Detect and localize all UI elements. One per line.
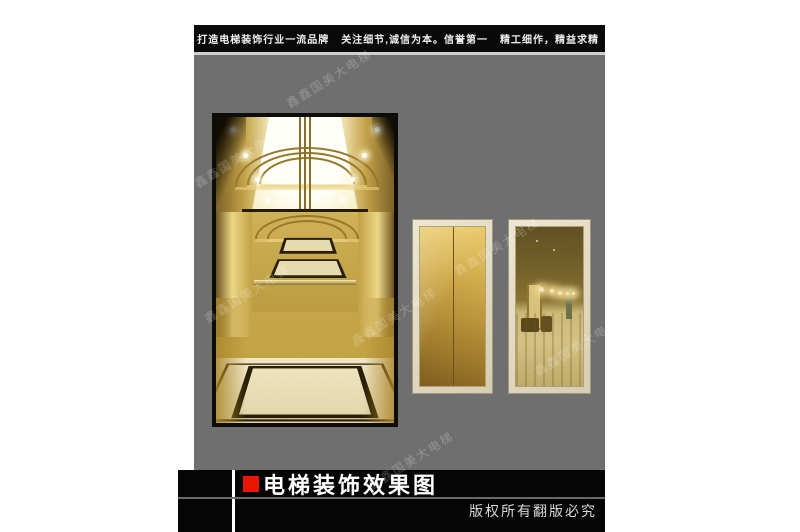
door-leaf-gold	[419, 226, 486, 387]
downlight-icon	[362, 153, 367, 158]
slogan-1: 打造电梯装饰行业一流品牌	[197, 31, 329, 46]
floor-gold-reflection	[216, 298, 246, 423]
ceiling-beam	[304, 117, 306, 213]
footer-bar: 电梯装饰效果图 版权所有翻版必究	[178, 470, 605, 532]
downlight-icon	[340, 197, 345, 202]
mirror-floor-reflection	[269, 259, 346, 278]
door-edge-shadow	[216, 117, 246, 207]
slogan-2: 关注细节,诚信为本。信誉第一	[341, 31, 488, 46]
slogan-3: 精工细作，精益求精	[500, 31, 599, 46]
floor-inlay-border	[231, 366, 378, 418]
gold-tint-overlay	[516, 227, 583, 386]
page-title: 电梯装饰效果图	[263, 468, 438, 500]
downlight-icon	[255, 177, 260, 182]
footer-gray-divider	[178, 497, 605, 499]
copyright-text: 版权所有翻版必究	[469, 501, 597, 521]
top-slogan-bar: 打造电梯装饰行业一流品牌 关注细节,诚信为本。信誉第一 精工细作，精益求精	[194, 25, 605, 52]
downlight-icon	[350, 177, 355, 182]
elevator-door-mirror-photo	[508, 219, 591, 394]
ceiling-beam	[309, 117, 311, 213]
elevator-door-closed-photo	[412, 219, 493, 394]
door-mirror-scene	[515, 226, 584, 387]
poster-page: 打造电梯装饰行业一流品牌 关注细节,诚信为本。信誉第一 精工细作，精益求精	[0, 0, 800, 532]
ceiling-beam	[299, 117, 301, 213]
floor-gold-reflection	[364, 298, 394, 423]
downlight-icon	[265, 197, 270, 202]
mirror-floor-reflection	[279, 238, 337, 254]
door-edge-shadow	[372, 117, 394, 187]
door-center-split	[453, 227, 454, 386]
title-bullet-square-icon	[243, 476, 259, 492]
footer-title-row: 电梯装饰效果图	[235, 470, 605, 497]
elevator-interior-photo	[212, 113, 398, 427]
handrail	[254, 280, 356, 285]
elevator-interior-render	[216, 117, 394, 423]
